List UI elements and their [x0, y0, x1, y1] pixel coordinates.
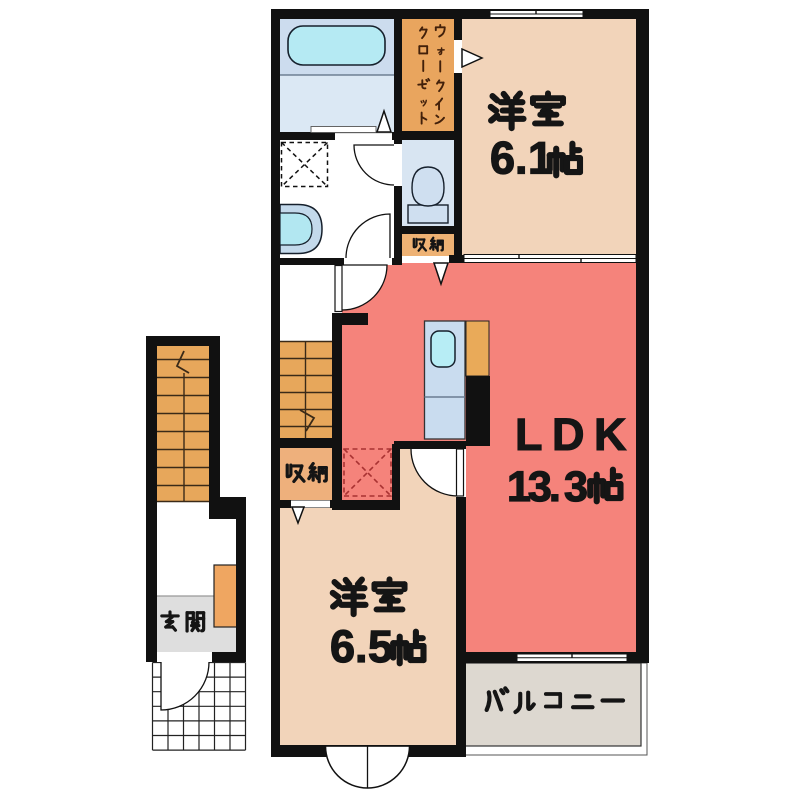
svg-text:3: 3 — [564, 463, 588, 511]
svg-text:13.: 13. — [507, 463, 558, 511]
svg-text:LDK: LDK — [515, 409, 636, 460]
svg-text:5: 5 — [368, 621, 393, 672]
svg-text:6.: 6. — [330, 621, 368, 672]
svg-text:6.: 6. — [490, 133, 528, 184]
